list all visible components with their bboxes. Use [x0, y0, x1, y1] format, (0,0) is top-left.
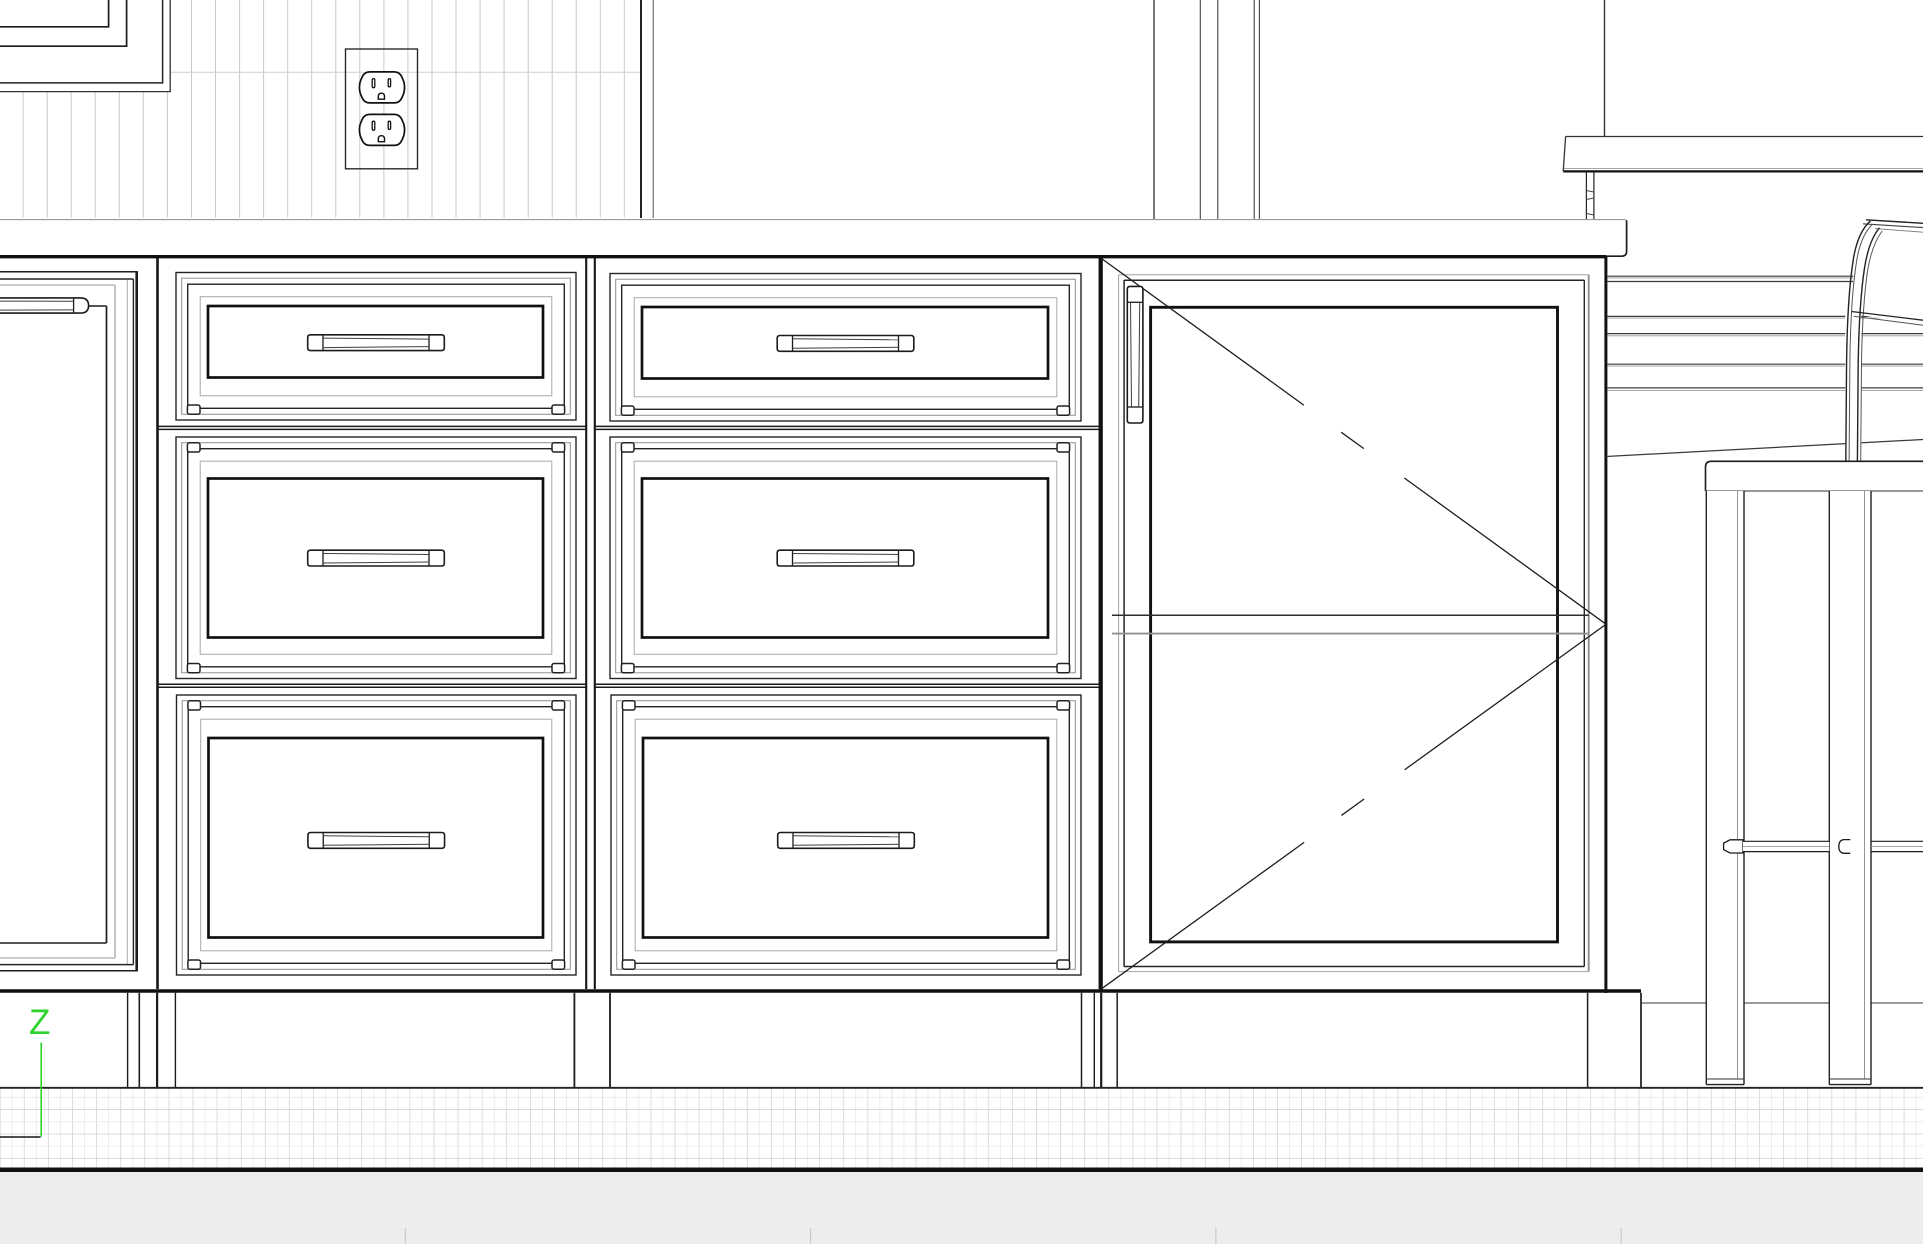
svg-text:Z: Z — [29, 1003, 50, 1042]
